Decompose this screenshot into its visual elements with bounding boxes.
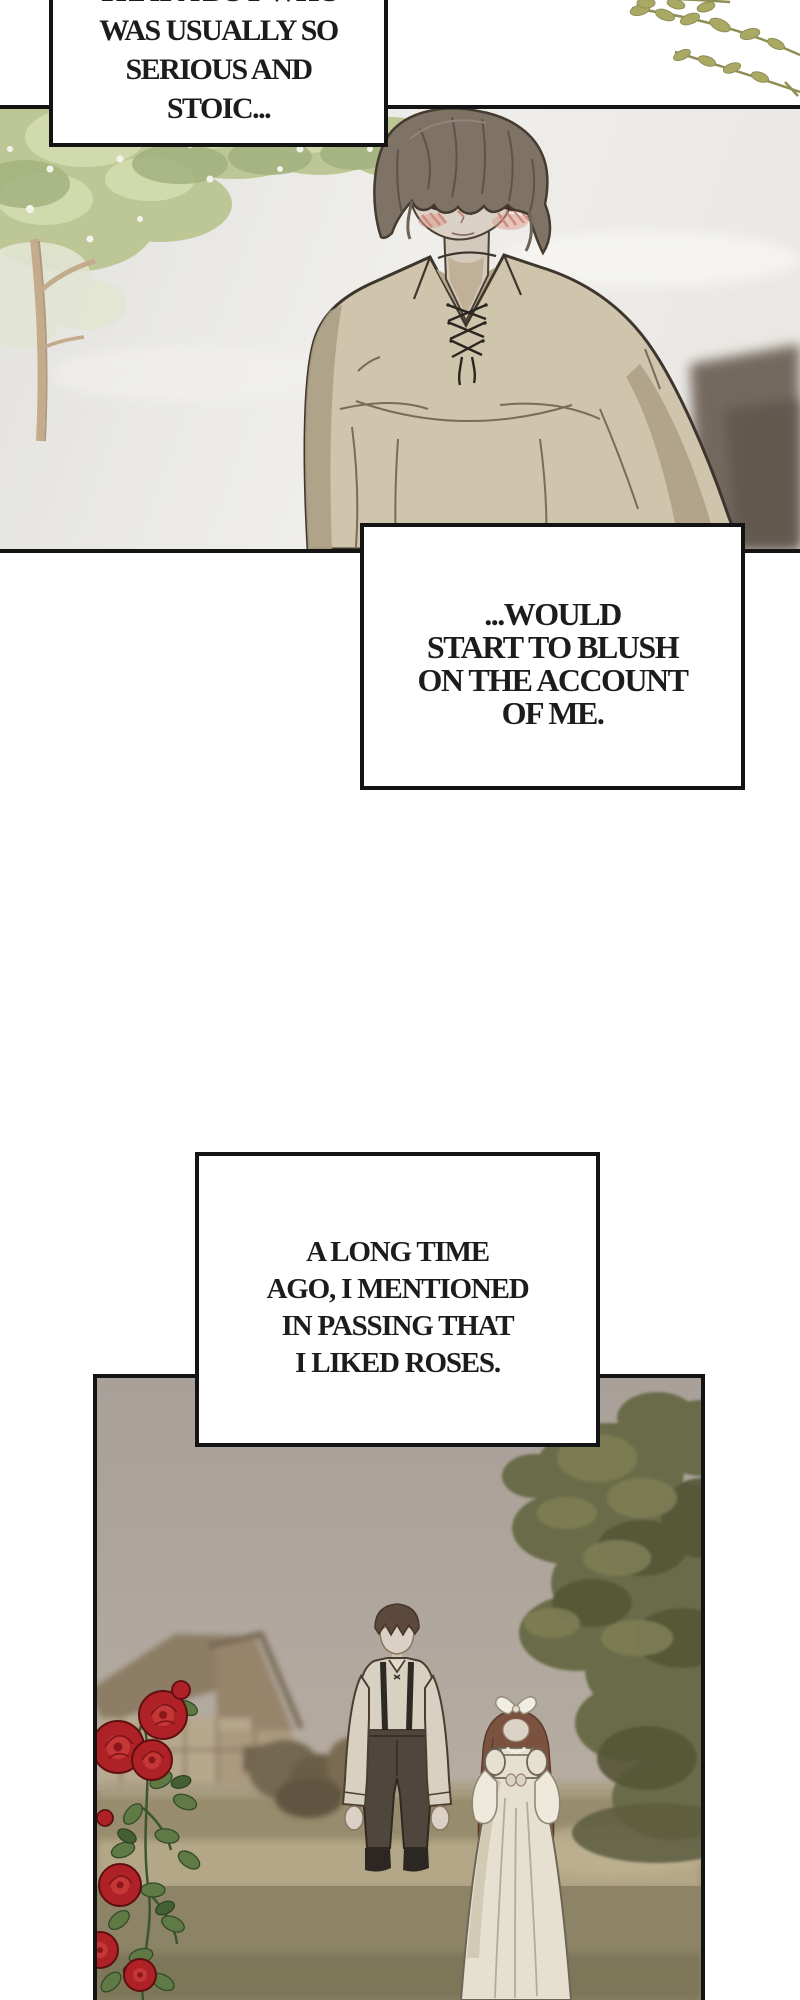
caption-box-1: THAT A BOY WHO WAS USUALLY SO SERIOUS AN…: [49, 0, 388, 147]
face: [503, 1719, 529, 1742]
hand: [506, 1774, 516, 1786]
hand: [345, 1806, 363, 1830]
caption-line: AGO, I MENTIONED: [199, 1271, 596, 1308]
hand: [516, 1774, 526, 1786]
caption-line: OF ME.: [364, 697, 741, 730]
comic-page: THAT A BOY WHO WAS USUALLY SO SERIOUS AN…: [0, 0, 800, 2000]
caption-line: STOIC...: [53, 89, 384, 128]
caption-line: IN PASSING THAT: [199, 1308, 596, 1345]
boot: [365, 1848, 391, 1872]
cloud: [50, 346, 330, 402]
caption-line: START TO BLUSH: [364, 631, 741, 664]
caption-box-3: A LONG TIME AGO, I MENTIONED IN PASSING …: [195, 1152, 600, 1447]
boot: [403, 1848, 429, 1872]
caption-line: I LIKED ROSES.: [199, 1345, 596, 1382]
hand: [431, 1806, 449, 1830]
caption-box-2: ...WOULD START TO BLUSH ON THE ACCOUNT O…: [360, 523, 745, 790]
panel-blushing-boy: [0, 105, 800, 553]
caption-line: A LONG TIME: [199, 1234, 596, 1271]
caption-line: THAT A BOY WHO: [53, 0, 384, 11]
panel-countryside-memory: [93, 1374, 705, 2000]
caption-line: ...WOULD: [364, 598, 741, 631]
caption-line: WAS USUALLY SO: [53, 11, 384, 50]
caption-line: ON THE ACCOUNT: [364, 664, 741, 697]
plant-sprig-icon: [580, 0, 800, 100]
caption-line: SERIOUS AND: [53, 50, 384, 89]
